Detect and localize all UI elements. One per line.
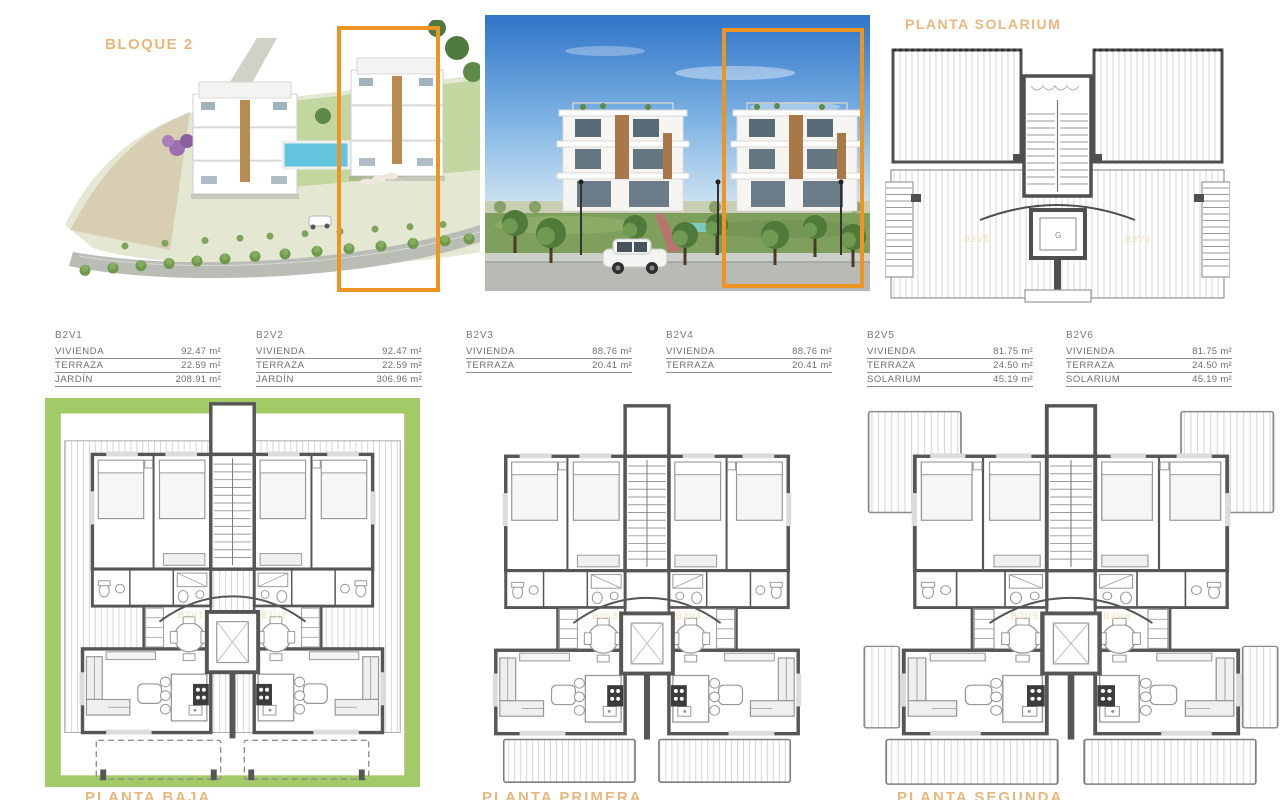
unit-code: B2V6 [1066, 330, 1232, 341]
spec-label: VIVIENDA [256, 346, 305, 357]
spec-label: JARDÍN [55, 374, 93, 385]
spec-row: TERRAZA22.59 m² [55, 359, 221, 373]
spec-value: 22.59 m² [181, 360, 221, 371]
spec-row: TERRAZA20.41 m² [666, 359, 832, 373]
spec-value: 88.76 m² [792, 346, 832, 357]
render-highlight-rectangle [722, 28, 864, 288]
spec-label: TERRAZA [867, 360, 916, 371]
floorplan-drawing: B2V5B2V6 [862, 400, 1280, 788]
spec-value: 24.50 m² [993, 360, 1033, 371]
spec-label: VIVIENDA [466, 346, 515, 357]
unit-code: B2V2 [256, 330, 422, 341]
spec-value: 88.76 m² [592, 346, 632, 357]
svg-text:G: G [1055, 231, 1061, 240]
spec-value: 81.75 m² [993, 346, 1033, 357]
spec-row: VIVIENDA92.47 m² [55, 345, 221, 359]
unit-code: B2V5 [867, 330, 1033, 341]
spec-label: SOLARIUM [867, 374, 921, 385]
svg-text:B2V5: B2V5 [1010, 612, 1039, 621]
spec-row: VIVIENDA81.75 m² [1066, 345, 1232, 359]
floorplan-planta-segunda: B2V5B2V6 [862, 400, 1280, 788]
spec-value: 22.59 m² [382, 360, 422, 371]
svg-text:B2V1: B2V1 [178, 610, 204, 620]
spec-row: TERRAZA24.50 m² [867, 359, 1033, 373]
spec-value: 45.19 m² [993, 374, 1033, 385]
block-title: BLOQUE 2 [105, 36, 194, 53]
unit-spec-table: B2V3 VIVIENDA88.76 m²TERRAZA20.41 m² [466, 330, 632, 373]
spec-label: VIVIENDA [666, 346, 715, 357]
svg-text:B2V4: B2V4 [676, 611, 702, 621]
floorplan-planta-primera: B2V3B2V4 [458, 400, 836, 788]
spec-row: VIVIENDA88.76 m² [466, 345, 632, 359]
aerial-highlight-rectangle [337, 26, 440, 292]
spec-label: TERRAZA [466, 360, 515, 371]
svg-text:B2V6: B2V6 [1125, 234, 1151, 244]
spec-value: 20.41 m² [792, 360, 832, 371]
spec-label: JARDÍN [256, 374, 294, 385]
spec-row: SOLARIUM45.19 m² [1066, 373, 1232, 387]
unit-spec-table: B2V6 VIVIENDA81.75 m²TERRAZA24.50 m²SOLA… [1066, 330, 1232, 387]
unit-code: B2V1 [55, 330, 221, 341]
solarium-plan-drawing: GB2V5B2V6 [885, 42, 1230, 308]
floorplan-drawing: B2V1B2V2 [45, 398, 420, 787]
unit-spec-table: B2V2 VIVIENDA92.47 m²TERRAZA22.59 m²JARD… [256, 330, 422, 387]
spec-value: 306.96 m² [377, 374, 422, 385]
spec-label: SOLARIUM [1066, 374, 1120, 385]
unit-code: B2V4 [666, 330, 832, 341]
spec-label: VIVIENDA [55, 346, 104, 357]
spec-label: TERRAZA [666, 360, 715, 371]
spec-value: 92.47 m² [181, 346, 221, 357]
floorplan-planta-baja: B2V1B2V2 [45, 398, 420, 787]
spec-value: 20.41 m² [592, 360, 632, 371]
spec-row: SOLARIUM45.19 m² [867, 373, 1033, 387]
spec-value: 24.50 m² [1192, 360, 1232, 371]
spec-row: VIVIENDA92.47 m² [256, 345, 422, 359]
svg-text:B2V5: B2V5 [964, 234, 990, 244]
caption-planta-segunda: PLANTA SEGUNDA [897, 789, 1063, 800]
spec-value: 92.47 m² [382, 346, 422, 357]
spec-label: VIVIENDA [867, 346, 916, 357]
plan-sheet: BLOQUE 2 PLANTA SOLARIUM GB2V5B2V6 B2V1 … [0, 0, 1280, 800]
spec-value: 81.75 m² [1192, 346, 1232, 357]
unit-spec-table: B2V5 VIVIENDA81.75 m²TERRAZA24.50 m²SOLA… [867, 330, 1033, 387]
solarium-title: PLANTA SOLARIUM [905, 16, 1061, 32]
svg-text:B2V2: B2V2 [261, 610, 287, 620]
spec-label: TERRAZA [1066, 360, 1115, 371]
spec-value: 45.19 m² [1192, 374, 1232, 385]
spec-label: TERRAZA [55, 360, 104, 371]
spec-row: TERRAZA20.41 m² [466, 359, 632, 373]
spec-row: TERRAZA22.59 m² [256, 359, 422, 373]
unit-code: B2V3 [466, 330, 632, 341]
solarium-plan-panel: GB2V5B2V6 [885, 42, 1230, 308]
caption-planta-baja: PLANTA BAJA [85, 789, 211, 800]
spec-row: VIVIENDA81.75 m² [867, 345, 1033, 359]
caption-planta-primera: PLANTA PRIMERA [482, 789, 643, 800]
spec-row: JARDÍN306.96 m² [256, 373, 422, 387]
unit-spec-table: B2V4 VIVIENDA88.76 m²TERRAZA20.41 m² [666, 330, 832, 373]
svg-text:B2V3: B2V3 [592, 611, 618, 621]
spec-row: VIVIENDA88.76 m² [666, 345, 832, 359]
floorplan-drawing: B2V3B2V4 [458, 400, 836, 788]
unit-spec-table: B2V1 VIVIENDA92.47 m²TERRAZA22.59 m²JARD… [55, 330, 221, 387]
spec-row: JARDÍN208.91 m² [55, 373, 221, 387]
spec-value: 208.91 m² [176, 374, 221, 385]
spec-label: TERRAZA [256, 360, 305, 371]
spec-label: VIVIENDA [1066, 346, 1115, 357]
spec-row: TERRAZA24.50 m² [1066, 359, 1232, 373]
svg-text:B2V6: B2V6 [1103, 612, 1132, 621]
